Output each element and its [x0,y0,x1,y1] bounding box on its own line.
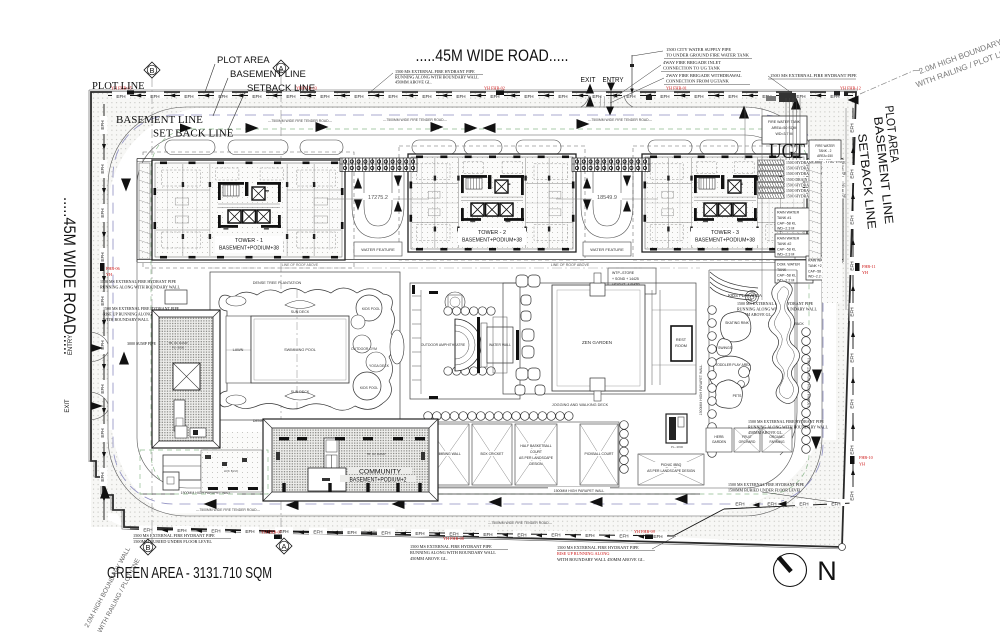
svg-text:FHB-10: FHB-10 [859,455,873,460]
svg-text:FHB-11: FHB-11 [862,264,876,269]
svg-text:+ SOND + 14425: + SOND + 14425 [612,277,639,281]
svg-text:---7500MM WIDE FIRE TENDER: ---7500MM WIDE FIRE TENDER ROAD--- [268,119,332,123]
svg-text:HVK BLVK: HVK BLVK [224,469,238,473]
svg-text:SET BACK LINE: SET BACK LINE [153,128,234,140]
svg-text:FIRE WATER: FIRE WATER [815,144,835,148]
svg-text:FRUIT: FRUIT [742,435,752,439]
svg-text:COURT: COURT [530,450,542,454]
svg-text:EFH: EFH [354,94,363,99]
svg-text:EFH: EFH [796,94,805,99]
svg-text:CAP--58 KL: CAP--58 KL [777,273,796,277]
svg-text:A: A [281,542,286,551]
svg-text:1500MM BURIED UNDER FLOOR LEVE: 1500MM BURIED UNDER FLOOR LEVEL [133,539,212,544]
svg-text:YH: YH [859,462,865,467]
svg-text:4WAY FIRE BRIGADE INLET: 4WAY FIRE BRIGADE INLET [663,60,721,65]
svg-text:SUN DECK: SUN DECK [291,310,310,314]
svg-text:EFH: EFH [456,94,465,99]
svg-text:RISE UP RUNNING ALONG: RISE UP RUNNING ALONG [557,551,609,556]
svg-text:17275.2: 17275.2 [368,195,388,201]
svg-text:1500 MS EXTERNAL FIRE HYDRANT: 1500 MS EXTERNAL FIRE HYDRANT PIPE [557,545,639,550]
svg-text:EFH: EFH [517,532,526,537]
svg-text:WATER WALL: WATER WALL [489,343,511,347]
svg-text:PETS: PETS [733,394,743,398]
svg-text:BASEMENT LINE: BASEMENT LINE [230,69,306,80]
svg-text:EFH: EFH [184,94,193,99]
svg-text:EFH: EFH [585,533,594,538]
svg-text:YH FHB-09: YH FHB-09 [634,529,655,534]
svg-text:PLOT AREA: PLOT AREA [217,55,270,66]
svg-text:FHB-06: FHB-06 [106,266,120,271]
svg-text:1500 MS EXTERNAL FIRE HYDRANT: 1500 MS EXTERNAL FIRE HYDRANT PIPE [133,533,215,538]
svg-text:KIDS POOL: KIDS POOL [360,386,378,390]
svg-text:SWINGS: SWINGS [718,346,732,350]
svg-text:YH FHB-08: YH FHB-08 [443,536,464,541]
svg-text:YH FHB-01: YH FHB-01 [666,86,687,91]
svg-text:WITH BOUNDARY WALL: WITH BOUNDARY WALL [103,317,149,322]
svg-text:EFH: EFH [799,501,808,506]
svg-text:PL--3800: PL--3800 [172,346,185,350]
svg-text:1500 MS EXTERNAL FIRE HYDRANT: 1500 MS EXTERNAL FIRE HYDRANT PIPE [100,279,177,284]
svg-text:1500MM HIGH PARAPET WALL: 1500MM HIGH PARAPET WALL [554,489,605,493]
svg-text:EFH: EFH [100,384,105,393]
svg-text:18549.9: 18549.9 [597,195,617,201]
svg-text:.....45M WIDE ROAD.....: .....45M WIDE ROAD..... [416,47,569,65]
svg-text:LINE OF ROOF ABOVE: LINE OF ROOF ABOVE [282,263,319,267]
svg-text:OUTDOOR GYM: OUTDOOR GYM [351,347,377,351]
svg-text:EFH: EFH [619,534,628,539]
svg-text:EFH: EFH [694,94,703,99]
svg-text:WATER FEATURE: WATER FEATURE [590,247,624,252]
svg-text:---7500MM WIDE FIRE TENDER: ---7500MM WIDE FIRE TENDER ROAD--- [196,508,260,512]
svg-text:GARDEN: GARDEN [712,440,727,444]
svg-text:YH FHB-07: YH FHB-07 [261,530,282,535]
svg-text:1500 MS EXTERNAL FIRE HYDRANT: 1500 MS EXTERNAL FIRE HYDRANT PIPE [728,482,805,487]
svg-text:EFH: EFH [660,94,669,99]
svg-text:ORGANIC: ORGANIC [769,435,785,439]
svg-text:EFH: EFH [252,94,261,99]
svg-text:450MM ABOVE GL.: 450MM ABOVE GL. [748,430,783,435]
svg-text:EFH: EFH [381,531,390,536]
svg-text:BASEMENT+PODIUM+38: BASEMENT+PODIUM+38 [695,238,755,244]
svg-text:SETBACK LINE: SETBACK LINE [247,83,315,94]
svg-text:PICNIC /BBQ: PICNIC /BBQ [661,463,682,467]
svg-text:WD=3.7 M: WD=3.7 M [775,132,792,136]
svg-text:WD--2.3 M: WD--2.3 M [777,227,794,231]
svg-text:SWIMMING POOL: SWIMMING POOL [284,348,316,352]
svg-text:DOM. WATER: DOM. WATER [777,263,800,267]
svg-text:YH FHB-02: YH FHB-02 [484,86,505,91]
svg-text:150O CITY WATER SUPPLY PIPE: 150O CITY WATER SUPPLY PIPE [666,47,731,52]
svg-text:BASEMENT+PODIUM+38: BASEMENT+PODIUM+38 [462,238,522,244]
svg-text:EFH: EFH [415,531,424,536]
svg-text:B: B [145,543,150,552]
svg-text:EFH: EFH [100,164,105,173]
svg-text:RAIN WATER: RAIN WATER [777,237,800,241]
svg-text:PLOT LINE: PLOT LINE [92,81,145,92]
svg-text:OUTDOOR AMPHITHEATRE: OUTDOOR AMPHITHEATRE [421,343,466,347]
svg-text:EFH: EFH [313,530,322,535]
svg-text:CONNECTION FROM UGTANK: CONNECTION FROM UGTANK [666,79,730,84]
svg-text:WTP--STORE: WTP--STORE [612,271,635,275]
svg-text:1500 MS EXTERNAL FIRE HYDRANT: 1500 MS EXTERNAL FIRE HYDRANT PIPE [748,419,825,424]
svg-text:EFH: EFH [653,534,662,539]
svg-text:---7500MM WIDE FIRE TENDER: ---7500MM WIDE FIRE TENDER ROAD--- [488,521,552,525]
svg-text:EFH: EFH [347,530,356,535]
svg-text:WATER FEATURE: WATER FEATURE [361,247,395,252]
svg-text:AREA=150: AREA=150 [817,154,833,158]
svg-text:RUNNING ALONG WITH BOUNDARY WA: RUNNING ALONG WITH BOUNDARY WALL [410,550,496,555]
svg-text:REST: REST [676,338,687,342]
svg-text:CAP--58 KL: CAP--58 KL [777,247,796,251]
svg-text:EFH: EFH [850,261,855,270]
svg-text:PL--3800: PL--3800 [671,445,684,449]
svg-text:450MM ABOVE GL.: 450MM ABOVE GL. [395,80,432,85]
svg-text:B: B [149,66,154,75]
svg-text:ORCHARD: ORCHARD [739,440,756,444]
svg-text:BASEMENT LINE: BASEMENT LINE [116,114,203,126]
svg-text:DESIGN: DESIGN [530,462,544,466]
svg-text:YOGA DECK: YOGA DECK [369,364,390,368]
svg-text:ENTRY: ENTRY [68,335,74,355]
svg-text:EFH: EFH [767,501,776,506]
svg-text:EFH: EFH [100,296,105,305]
svg-text:EFH: EFH [850,307,855,316]
svg-text:TODDLER PLAY AREA: TODDLER PLAY AREA [715,363,751,367]
svg-text:EFH: EFH [100,208,105,217]
svg-text:YH: YH [862,270,868,275]
svg-text:AS PER LANDSCAPE DESIGN: AS PER LANDSCAPE DESIGN [647,469,695,473]
svg-text:TOWER - 3: TOWER - 3 [711,230,739,236]
svg-text:EFH: EFH [551,533,560,538]
svg-text:EFH: EFH [850,491,855,500]
svg-text:EXIT: EXIT [65,399,71,413]
svg-text:3000 SUMP PIPE: 3000 SUMP PIPE [127,341,157,346]
svg-text:EFH: EFH [422,94,431,99]
svg-text:EFH: EFH [388,94,397,99]
svg-text:EXIT: EXIT [581,75,596,84]
svg-text:TANK #1: TANK #1 [777,216,791,220]
svg-text:BOX CRICKET: BOX CRICKET [481,452,504,456]
svg-text:RAIN WATER: RAIN WATER [777,211,800,215]
svg-text:TOWER - 2: TOWER - 2 [478,230,506,236]
svg-text:LAWN: LAWN [233,348,244,352]
svg-text:1500 MS EXTERNAL FIRE HYDRANT: 1500 MS EXTERNAL FIRE HYDRANT PIPE [395,69,475,74]
svg-text:SKATING RINK: SKATING RINK [725,321,749,325]
svg-text:EFH: EFH [483,532,492,537]
svg-text:TB. OF RAMP: TB. OF RAMP [366,452,385,456]
svg-text:EFH: EFH [100,120,105,129]
svg-text:EFH: EFH [558,94,567,99]
svg-text:BASEMENT+PODIUM+2: BASEMENT+PODIUM+2 [350,477,407,484]
svg-text:---7500MM WIDE FIRE TENDER: ---7500MM WIDE FIRE TENDER ROAD--- [588,118,652,122]
svg-text:150O MS EXTERNAL FIRE HYDRANT: 150O MS EXTERNAL FIRE HYDRANT PIPE [770,73,857,78]
svg-text:EFH: EFH [245,529,254,534]
svg-text:EFH: EFH [850,169,855,178]
svg-text:WD--2.3 M: WD--2.3 M [777,253,794,257]
svg-text:EFH: EFH [116,94,125,99]
svg-text:EFH: EFH [320,94,329,99]
svg-text:JOGGING AND WALKING DECK: JOGGING AND WALKING DECK [552,403,609,407]
svg-text:EFH: EFH [143,527,152,532]
svg-text:---7500MM WIDE FIRE TENDER: ---7500MM WIDE FIRE TENDER ROAD--- [383,118,447,122]
svg-text:WITH BOUNDARY WALL 450MM ABOVE: WITH BOUNDARY WALL 450MM ABOVE GL. [557,557,645,562]
svg-text:1500 MS EXTERNAL FIRE HYDRANT: 1500 MS EXTERNAL FIRE HYDRANT PIPE [103,306,180,311]
svg-text:EFH: EFH [850,353,855,362]
svg-text:EFH: EFH [100,428,105,437]
svg-text:HERB: HERB [714,435,724,439]
svg-text:EFH: EFH [850,445,855,454]
svg-text:FIRE WATER TANK: FIRE WATER TANK [768,120,801,124]
svg-text:RISE UP RUNNING ALONG: RISE UP RUNNING ALONG [103,312,152,317]
svg-text:RUNNING ALONG WITH BOUNDARY WA: RUNNING ALONG WITH BOUNDARY WALL [748,425,828,430]
svg-text:YH FHB-12: YH FHB-12 [840,86,861,91]
svg-text:SUN DECK: SUN DECK [291,390,310,394]
svg-text:EFH: EFH [735,501,744,506]
svg-text:CONNECTION TO UG TANK: CONNECTION TO UG TANK [663,66,721,71]
svg-text:BASEMENT+PODIUM+38: BASEMENT+PODIUM+38 [219,246,279,252]
svg-text:RUNNING ALONG WITH BOUNDARY WA: RUNNING ALONG WITH BOUNDARY WALL [100,285,180,290]
svg-text:DENSE TREE PLANTATION: DENSE TREE PLANTATION [253,281,302,285]
svg-text:EFH: EFH [286,94,295,99]
svg-text:ZEN GARDEN: ZEN GARDEN [582,340,612,345]
svg-text:TB. OF RAMP: TB. OF RAMP [168,341,187,345]
svg-text:AS PER LANDSCAPE: AS PER LANDSCAPE [519,456,554,460]
svg-text:PICKBALL COURT: PICKBALL COURT [584,452,613,456]
svg-text:RUNNING ALONG WITH BOUNDARY WA: RUNNING ALONG WITH BOUNDARY WALL [395,74,479,79]
svg-text:TOWER - 1: TOWER - 1 [235,238,263,244]
svg-text:TANK - 2: TANK - 2 [819,149,832,153]
svg-text:TO UNDER GROUND FIRE WATER TAN: TO UNDER GROUND FIRE WATER TANK [666,53,750,58]
svg-text:ROOM: ROOM [675,344,687,348]
svg-text:HALF BASKETBALL: HALF BASKETBALL [520,444,551,448]
svg-text:1500MM HIGH PARAPET WALL: 1500MM HIGH PARAPET WALL [699,365,703,416]
svg-text:FARMING: FARMING [769,440,784,444]
svg-text:YH: YH [106,272,112,277]
svg-text:COMMUNITY: COMMUNITY [359,469,402,476]
svg-text:TANK +2: TANK +2 [808,264,822,268]
svg-text:EFH: EFH [850,399,855,408]
svg-text:CAP--58 KL: CAP--58 KL [777,221,796,225]
svg-text:N: N [817,556,837,586]
svg-text:1500MM BURIED UNDER FLOOR LEVE: 1500MM BURIED UNDER FLOOR LEVEL [728,488,802,493]
svg-text:EFH: EFH [728,94,737,99]
svg-text:LINE OF ROOF ABOVE: LINE OF ROOF ABOVE [551,263,590,267]
svg-text:KIDS POOL: KIDS POOL [362,307,380,311]
svg-text:EFH: EFH [100,252,105,261]
svg-text:EFH: EFH [850,215,855,224]
svg-text:.....45M WIDE ROAD.....: .....45M WIDE ROAD..... [60,197,79,355]
svg-text:EFH: EFH [100,472,105,481]
svg-text:TANK #2: TANK #2 [777,242,791,246]
svg-text:450MM ABOVE GL.: 450MM ABOVE GL. [410,556,448,561]
svg-text:EFH: EFH [850,123,855,132]
svg-text:1500MM HIGH PARAPET WALL: 1500MM HIGH PARAPET WALL [807,357,811,408]
svg-text:1500 MS EXTERNAL FIRE HYDRANT: 1500 MS EXTERNAL FIRE HYDRANT PIPE [410,544,492,549]
svg-text:EFH: EFH [524,94,533,99]
svg-text:2WAY FIRE BRIGADE WITHDRAWAL: 2WAY FIRE BRIGADE WITHDRAWAL [666,73,742,78]
svg-text:UGT: UGT [769,139,805,163]
